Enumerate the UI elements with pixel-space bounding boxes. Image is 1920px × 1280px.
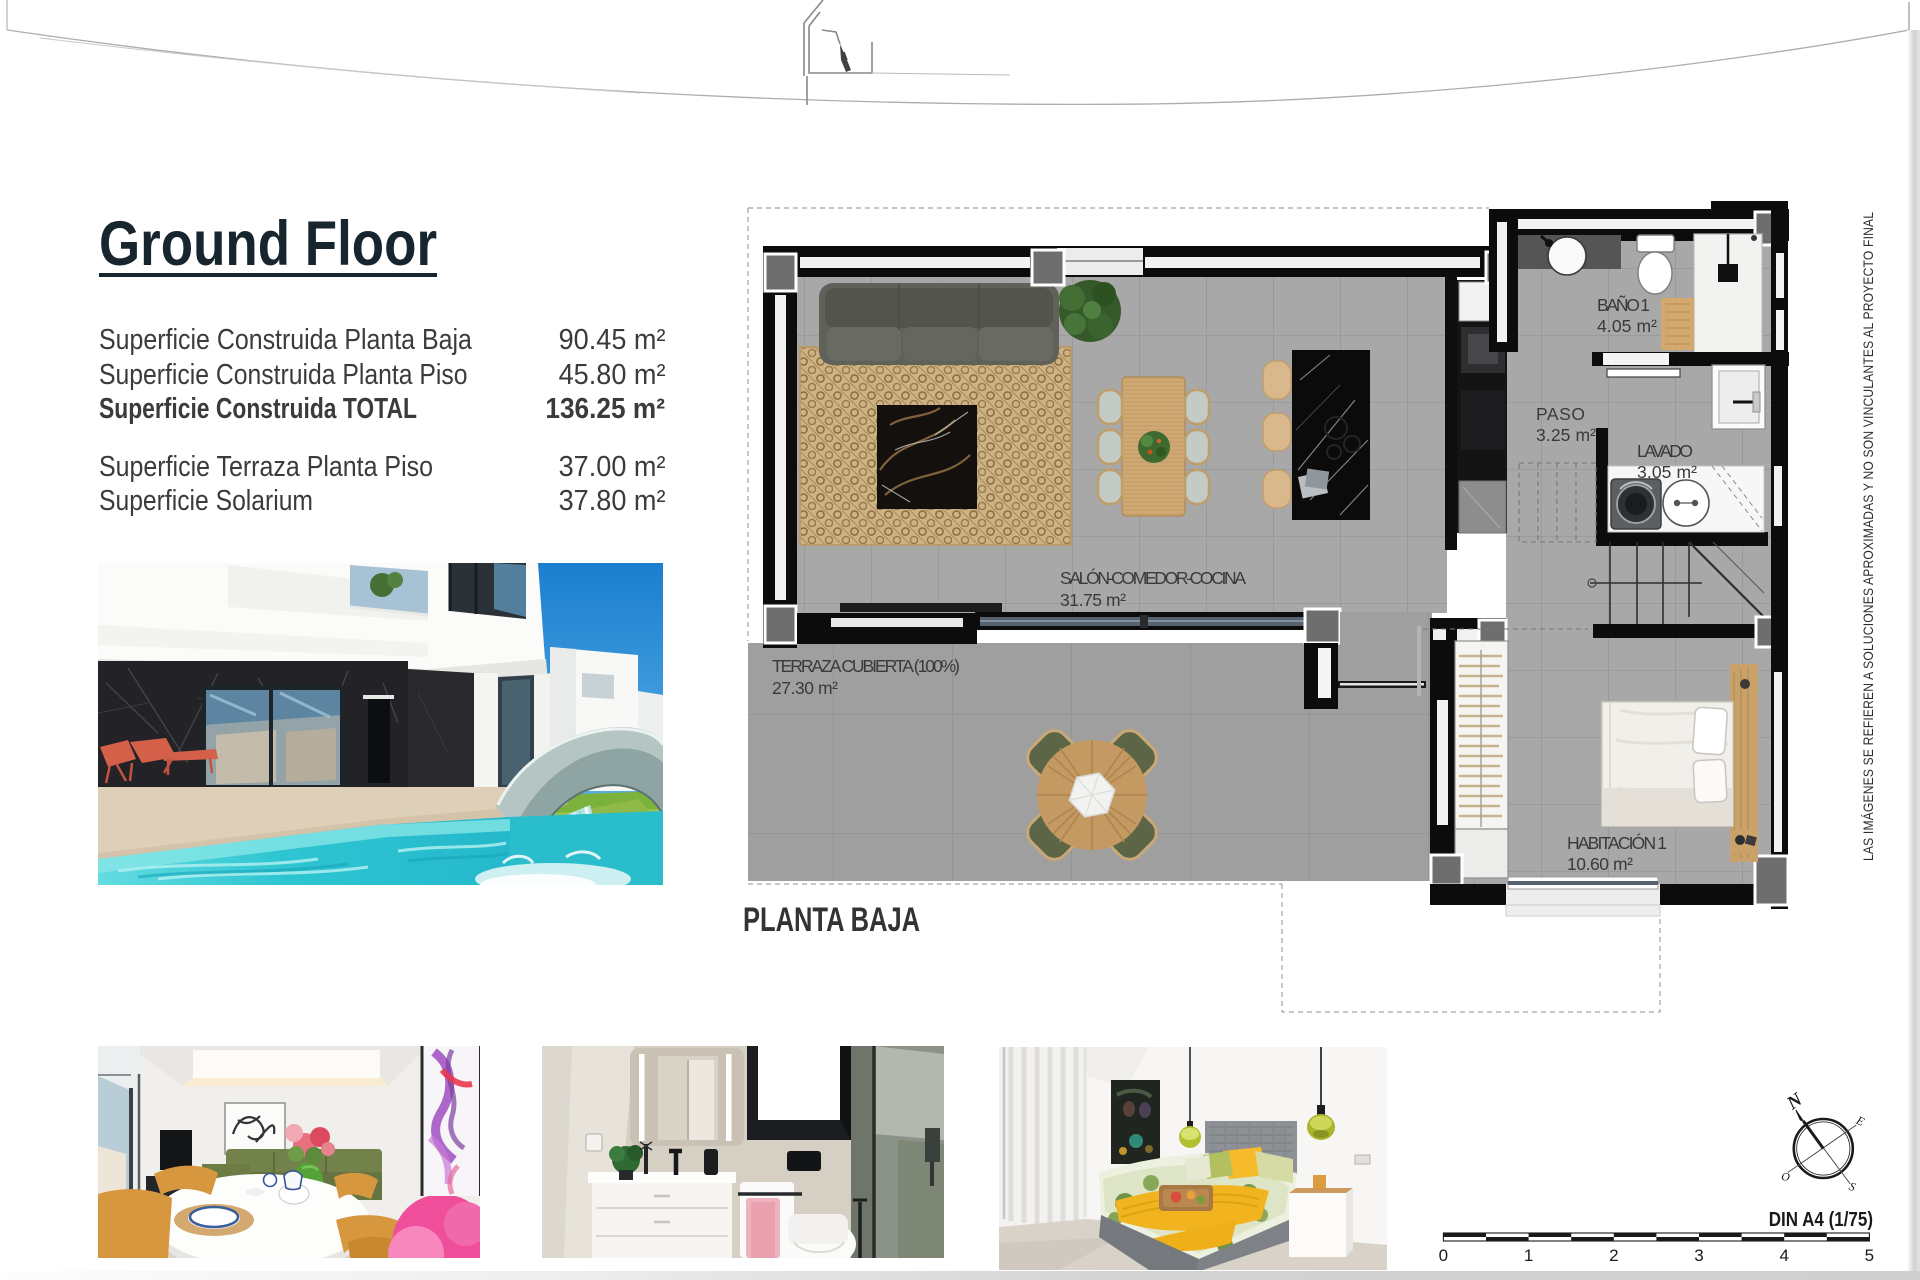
svg-text:4: 4 [1779, 1246, 1788, 1265]
svg-text:TERRAZA CUBIERTA (100%): TERRAZA CUBIERTA (100%) [772, 656, 960, 676]
svg-text:2: 2 [1609, 1246, 1618, 1265]
svg-text:3.05 m²: 3.05 m² [1637, 462, 1697, 482]
svg-text:PASO: PASO [1536, 404, 1585, 424]
svg-text:BAÑO 1: BAÑO 1 [1597, 294, 1650, 315]
svg-text:10.60 m²: 10.60 m² [1567, 854, 1633, 874]
svg-text:1: 1 [1524, 1246, 1533, 1265]
svg-text:0: 0 [1439, 1246, 1448, 1265]
svg-text:HABITACIÓN 1: HABITACIÓN 1 [1567, 832, 1667, 853]
svg-text:3.25 m²: 3.25 m² [1536, 425, 1596, 445]
svg-text:O: O [1781, 1170, 1790, 1184]
svg-text:LAVADO: LAVADO [1637, 441, 1693, 461]
svg-text:3: 3 [1694, 1246, 1703, 1265]
svg-text:4.05 m²: 4.05 m² [1597, 316, 1657, 336]
svg-text:31.75 m²: 31.75 m² [1060, 590, 1126, 610]
svg-text:SALÓN-COMEDOR-COCINA: SALÓN-COMEDOR-COCINA [1060, 567, 1246, 588]
svg-text:N: N [1782, 1088, 1807, 1114]
svg-text:5: 5 [1865, 1246, 1874, 1265]
svg-text:E: E [1853, 1113, 1867, 1129]
svg-text:27.30 m²: 27.30 m² [772, 678, 838, 698]
